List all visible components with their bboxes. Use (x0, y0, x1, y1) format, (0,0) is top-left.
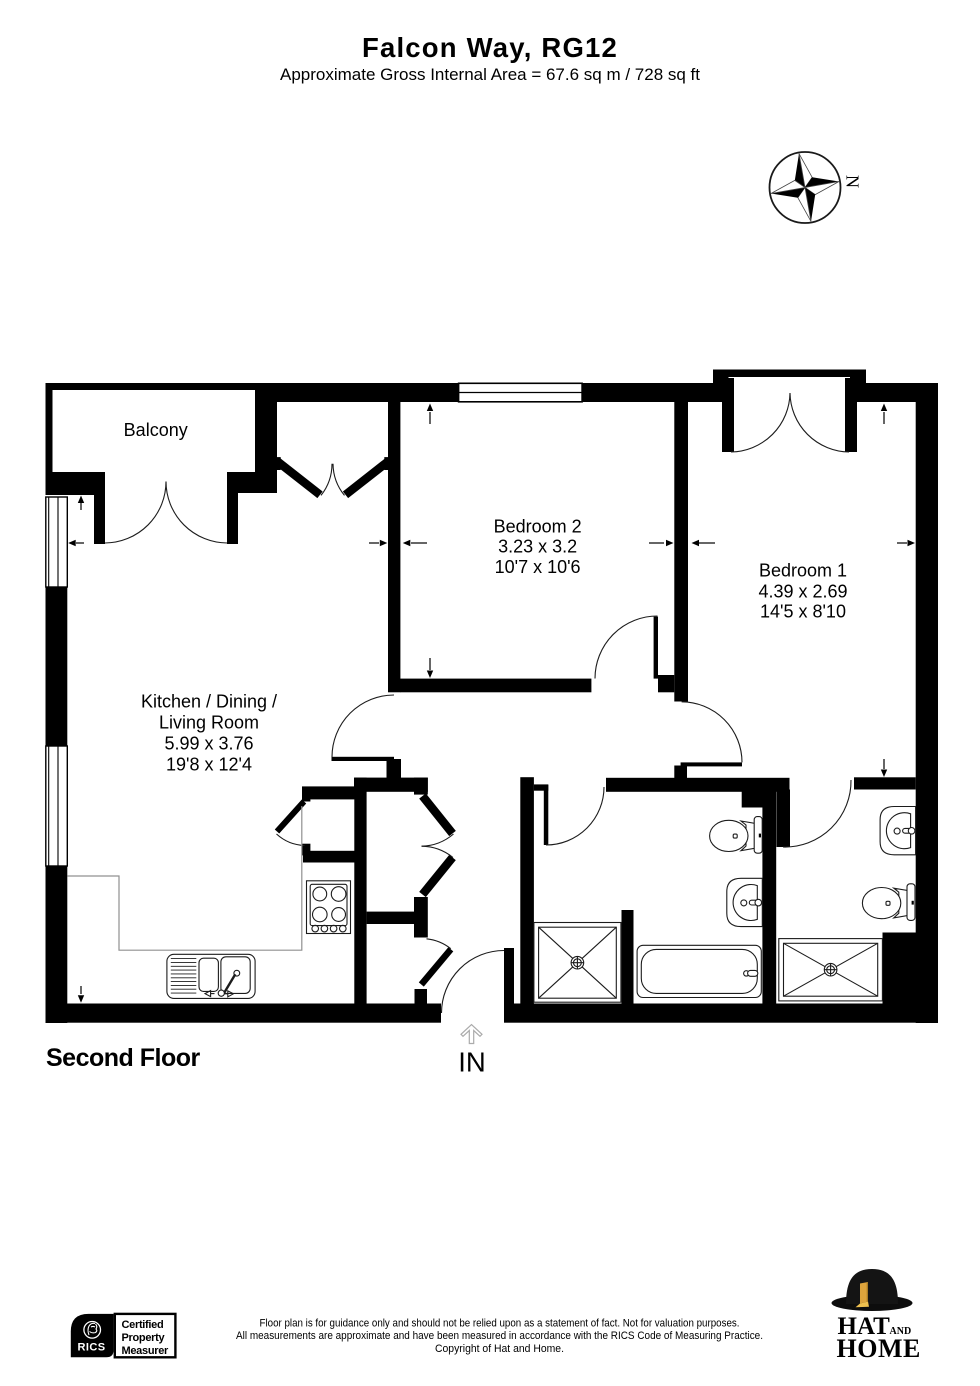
svg-text:Measurer: Measurer (122, 1345, 170, 1357)
svg-text:IN: IN (458, 1047, 486, 1078)
svg-text:Certified: Certified (122, 1319, 164, 1331)
svg-text:19'8 x 12'4: 19'8 x 12'4 (166, 755, 252, 775)
svg-text:Copyright of Hat and Home.: Copyright of Hat and Home. (435, 1343, 564, 1355)
svg-text:14'5 x 8'10: 14'5 x 8'10 (760, 602, 846, 622)
svg-text:3.23 x 3.2: 3.23 x 3.2 (498, 537, 577, 557)
svg-text:5.99 x 3.76: 5.99 x 3.76 (164, 734, 253, 754)
svg-text:HOME: HOME (837, 1334, 921, 1363)
svg-text:Kitchen / Dining /: Kitchen / Dining / (141, 692, 277, 712)
svg-text:Approximate Gross Internal Are: Approximate Gross Internal Area = 67.6 s… (280, 65, 700, 84)
svg-text:Bedroom 1: Bedroom 1 (759, 561, 847, 581)
svg-text:10'7 x 10'6: 10'7 x 10'6 (495, 557, 581, 577)
svg-text:4.39 x 2.69: 4.39 x 2.69 (758, 582, 847, 602)
svg-text:Bedroom 2: Bedroom 2 (494, 517, 582, 537)
svg-text:Property: Property (122, 1332, 166, 1344)
svg-text:Falcon Way, RG12: Falcon Way, RG12 (362, 32, 618, 63)
svg-text:N: N (843, 175, 863, 188)
svg-text:All measurements are approxima: All measurements are approximate and hav… (236, 1330, 763, 1342)
svg-text:Living Room: Living Room (159, 713, 259, 733)
svg-text:Balcony: Balcony (124, 420, 188, 440)
svg-text:Floor plan is for guidance onl: Floor plan is for guidance only and shou… (260, 1318, 740, 1330)
svg-text:RICS: RICS (78, 1341, 106, 1353)
svg-text:Second Floor: Second Floor (46, 1044, 201, 1072)
